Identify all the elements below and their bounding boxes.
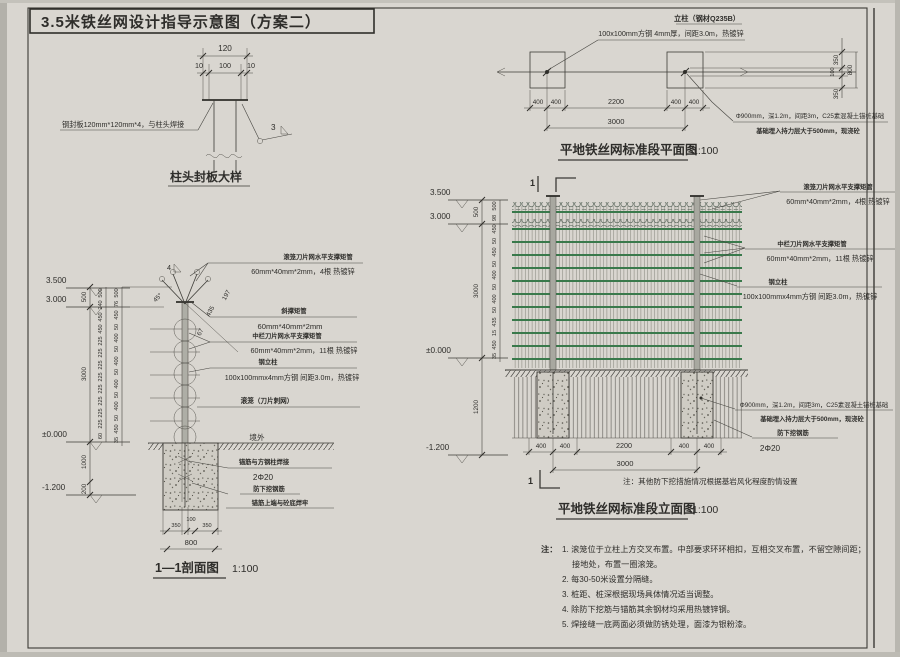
svg-text:400: 400	[114, 401, 120, 410]
note-line-1b: 接地处，布置一圈滚笼。	[572, 559, 662, 569]
svg-text:1:100: 1:100	[692, 145, 718, 157]
svg-text:225: 225	[98, 408, 104, 417]
svg-text:基础埋入持力层大于500mm，现浇砼: 基础埋入持力层大于500mm，现浇砼	[759, 414, 864, 423]
level-3500: 3.500	[46, 276, 67, 285]
svg-text:400: 400	[671, 99, 682, 106]
svg-text:50: 50	[114, 346, 120, 352]
svg-text:200: 200	[81, 483, 88, 494]
svg-text:35: 35	[492, 353, 498, 359]
svg-text:1: 1	[530, 178, 535, 188]
svg-text:60mm*40mm*2mm: 60mm*40mm*2mm	[258, 322, 323, 331]
svg-text:1—1剖面图: 1—1剖面图	[155, 560, 219, 575]
svg-text:60mm*40mm*2mm，4根 热镀锌: 60mm*40mm*2mm，4根 热镀锌	[786, 197, 889, 206]
plan-post-spec: 100x100mm方钢 4mm厚，间距3.0m，热镀锌	[598, 29, 743, 38]
svg-text:435: 435	[492, 317, 498, 326]
cap-dim-total: 120	[218, 44, 232, 53]
svg-text:50: 50	[492, 261, 498, 267]
svg-text:450: 450	[98, 312, 104, 321]
note-line-2: 2. 每30-50米设置分隔缝。	[562, 574, 658, 584]
svg-text:1000: 1000	[81, 455, 88, 470]
paper-edges	[0, 0, 900, 657]
svg-text:中栏刀片网水平支撑矩管: 中栏刀片网水平支撑矩管	[777, 239, 847, 248]
svg-text:防下挖钢筋: 防下挖钢筋	[777, 428, 809, 437]
svg-text:76: 76	[114, 301, 120, 307]
level-3000: 3.000	[46, 295, 67, 304]
svg-text:350: 350	[202, 523, 211, 529]
svg-text:60mm*40mm*2mm，11根 热镀锌: 60mm*40mm*2mm，11根 热镀锌	[767, 254, 874, 263]
svg-text:3000: 3000	[473, 284, 480, 299]
svg-text:500: 500	[492, 201, 498, 210]
svg-text:-1.200: -1.200	[426, 443, 450, 452]
svg-text:400: 400	[704, 443, 715, 450]
cap-dim-mid: 100	[219, 61, 231, 70]
svg-text:3000: 3000	[608, 117, 625, 126]
svg-text:225: 225	[98, 419, 104, 428]
svg-text:100x100mmx4mm方钢 间距3.0m，热镀锌: 100x100mmx4mm方钢 间距3.0m，热镀锌	[743, 292, 878, 301]
svg-text:1: 1	[528, 476, 533, 486]
svg-text:2200: 2200	[608, 97, 624, 106]
svg-text:225: 225	[98, 336, 104, 345]
svg-text:15: 15	[492, 330, 498, 336]
svg-text:225: 225	[98, 348, 104, 357]
svg-text:锚筋与方钢柱焊接: 锚筋与方钢柱焊接	[239, 457, 290, 466]
svg-text:锚筋上端与砼底焊牢: 锚筋上端与砼底焊牢	[252, 498, 309, 507]
svg-text:500: 500	[473, 206, 480, 217]
svg-text:500: 500	[114, 288, 120, 297]
svg-text:35: 35	[114, 437, 120, 443]
svg-text:400: 400	[560, 443, 571, 450]
svg-text:400: 400	[492, 270, 498, 279]
svg-text:3000: 3000	[617, 459, 634, 468]
svg-text:450: 450	[492, 224, 498, 233]
svg-text:400: 400	[492, 294, 498, 303]
svg-text:50: 50	[492, 284, 498, 290]
elevation-fence	[512, 196, 742, 370]
svg-text:50: 50	[492, 238, 498, 244]
svg-text:3.000: 3.000	[430, 212, 451, 221]
svg-text:斜撑矩管: 斜撑矩管	[280, 306, 307, 315]
cap-plate-label: 钢封板120mm*120mm*4，与柱头焊接	[62, 120, 184, 129]
title-block: 3.5米铁丝网设计指导示意图（方案二）	[30, 9, 374, 33]
svg-text:3.500: 3.500	[430, 188, 451, 197]
svg-text:50: 50	[114, 369, 120, 375]
svg-text:1:100: 1:100	[232, 563, 258, 575]
svg-text:400: 400	[114, 379, 120, 388]
svg-text:500: 500	[98, 288, 104, 297]
drawing-canvas: 3.5米铁丝网设计指导示意图（方案二） 120 10 100 10 钢封板120…	[0, 0, 900, 657]
svg-text:平地铁丝网标准段平面图: 平地铁丝网标准段平面图	[560, 142, 698, 157]
svg-text:400: 400	[536, 443, 547, 450]
svg-text:滚笼刀片网水平支撑矩管: 滚笼刀片网水平支撑矩管	[803, 182, 873, 191]
svg-text:滚笼（刀片刺网）: 滚笼（刀片刺网）	[241, 396, 294, 405]
drawing-sheet: 3.5米铁丝网设计指导示意图（方案二） 120 10 100 10 钢封板120…	[0, 0, 900, 657]
svg-text:滚笼刀片网水平支撑矩管: 滚笼刀片网水平支撑矩管	[283, 252, 353, 261]
svg-text:60: 60	[98, 433, 104, 439]
sheet-title: 3.5米铁丝网设计指导示意图（方案二）	[41, 13, 321, 31]
svg-text:450: 450	[114, 310, 120, 319]
svg-text:中栏刀片网水平支撑矩管: 中栏刀片网水平支撑矩管	[252, 331, 322, 340]
svg-text:50: 50	[114, 324, 120, 330]
svg-text:225: 225	[98, 372, 104, 381]
plan-post-title: 立柱（钢材Q235B）	[674, 14, 740, 23]
svg-text:50: 50	[114, 392, 120, 398]
svg-text:防下挖钢筋: 防下挖钢筋	[253, 484, 285, 493]
level-m1200: -1.200	[42, 483, 66, 492]
svg-text:2200: 2200	[616, 441, 632, 450]
cap-dim-left: 10	[195, 61, 203, 70]
svg-text:50: 50	[492, 307, 498, 313]
svg-text:钢立柱: 钢立柱	[769, 277, 789, 286]
svg-text:60mm*40mm*2mm，11根 热镀锌: 60mm*40mm*2mm，11根 热镀锌	[251, 346, 358, 355]
svg-text:500: 500	[81, 291, 88, 302]
elevation-ground	[505, 370, 748, 438]
svg-text:±0.000: ±0.000	[426, 346, 451, 355]
svg-text:2Φ20: 2Φ20	[253, 473, 274, 482]
svg-text:400: 400	[679, 443, 690, 450]
svg-text:400: 400	[551, 99, 562, 106]
svg-text:100: 100	[830, 67, 836, 76]
svg-text:350: 350	[833, 54, 840, 65]
level-0000: ±0.000	[42, 430, 67, 439]
note-line-1: 1. 滚笼位于立柱上方交叉布置。中部要求环环相扣，互相交叉布置，不留空隙间距；	[562, 544, 866, 554]
svg-text:225: 225	[98, 396, 104, 405]
svg-text:225: 225	[98, 384, 104, 393]
svg-text:100x100mmx4mm方钢 间距3.0m，热镀锌: 100x100mmx4mm方钢 间距3.0m，热镀锌	[225, 373, 360, 382]
svg-text:450: 450	[98, 324, 104, 333]
svg-text:Φ900mm，深1.2m，间距3m，C25素混凝土锚桩基础: Φ900mm，深1.2m，间距3m，C25素混凝土锚桩基础	[740, 400, 888, 409]
svg-text:98: 98	[492, 215, 498, 221]
svg-text:350: 350	[833, 88, 840, 99]
svg-text:400: 400	[114, 356, 120, 365]
cap-detail-title: 柱头封板大样	[170, 169, 242, 184]
svg-text:境外: 境外	[249, 432, 265, 442]
svg-text:3000: 3000	[81, 367, 88, 382]
notes-prefix: 注：	[541, 544, 557, 554]
svg-text:350: 350	[171, 523, 180, 529]
svg-text:225: 225	[98, 360, 104, 369]
svg-text:400: 400	[689, 99, 700, 106]
svg-text:1:100: 1:100	[692, 504, 718, 516]
section-weld-mark: 4	[167, 263, 171, 272]
cap-dim-right: 10	[247, 61, 255, 70]
svg-text:450: 450	[114, 424, 120, 433]
note-line-5: 5. 焊接缝一底两面必须做防锈处理，面漆为银粉漆。	[562, 619, 751, 629]
note-line-3: 3. 桩距、桩深根据现场具体情况适当调整。	[562, 589, 718, 599]
svg-text:1200: 1200	[473, 400, 480, 415]
svg-text:800: 800	[185, 538, 198, 547]
svg-text:800: 800	[847, 64, 854, 75]
svg-text:400: 400	[114, 333, 120, 342]
svg-text:50: 50	[114, 415, 120, 421]
svg-text:Φ900mm，深1.2m，间距3m，C25素混凝土锚桩基础: Φ900mm，深1.2m，间距3m，C25素混凝土锚桩基础	[736, 111, 884, 120]
svg-text:平地铁丝网标准段立面图: 平地铁丝网标准段立面图	[558, 501, 696, 516]
elevation-note: 注：其他防下挖措施情况根据基岩风化程度酌情设置	[623, 476, 798, 486]
svg-text:基础埋入持力层大于500mm，现浇砼: 基础埋入持力层大于500mm，现浇砼	[755, 126, 860, 135]
svg-text:450: 450	[492, 340, 498, 349]
cap-weld-mark: 3	[271, 123, 276, 132]
svg-text:60mm*40mm*2mm，4根 热镀锌: 60mm*40mm*2mm，4根 热镀锌	[251, 267, 354, 276]
svg-text:450: 450	[492, 247, 498, 256]
svg-text:钢立柱: 钢立柱	[259, 357, 279, 366]
svg-text:100: 100	[186, 517, 195, 523]
svg-text:400: 400	[533, 99, 544, 106]
svg-text:2Φ20: 2Φ20	[760, 444, 781, 453]
note-line-4: 4. 除防下挖筋与锚筋其余钢材均采用热镀锌钢。	[562, 604, 735, 614]
svg-text:240: 240	[98, 300, 104, 309]
